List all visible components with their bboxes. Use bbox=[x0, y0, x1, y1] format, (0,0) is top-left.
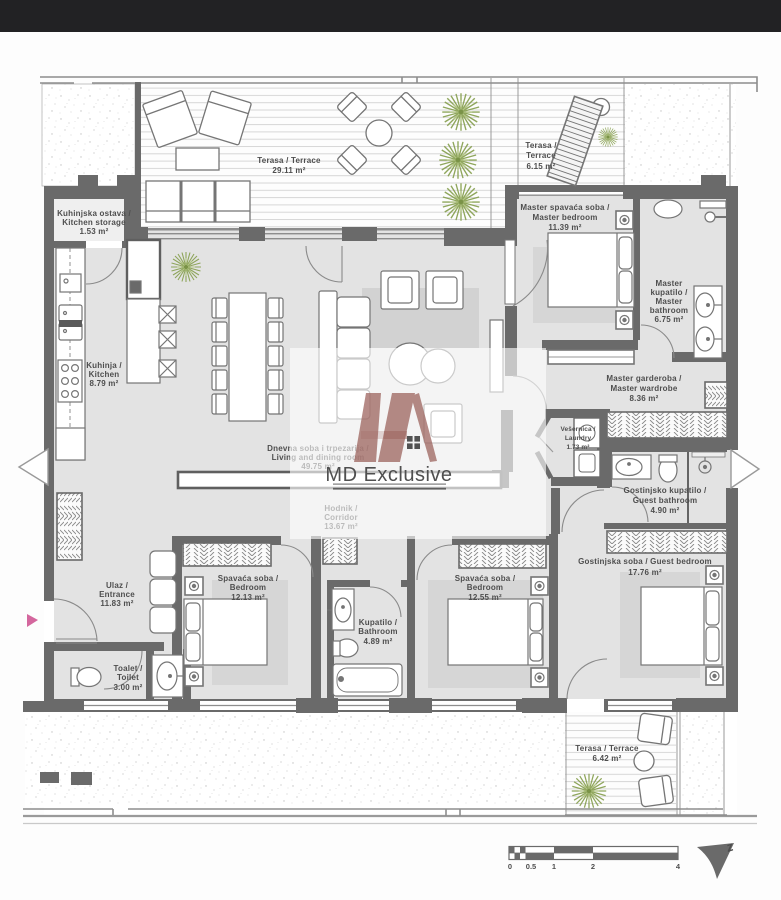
svg-text:Bedroom: Bedroom bbox=[230, 583, 267, 592]
svg-text:6.15 m²: 6.15 m² bbox=[527, 162, 556, 171]
svg-text:Master bedroom: Master bedroom bbox=[532, 213, 597, 222]
svg-text:MD Exclusive: MD Exclusive bbox=[325, 464, 452, 486]
svg-text:Terasa /: Terasa / bbox=[525, 141, 557, 150]
svg-text:29.11 m²: 29.11 m² bbox=[272, 166, 305, 175]
svg-text:6.75 m²: 6.75 m² bbox=[655, 315, 684, 324]
svg-text:Kitchen storage: Kitchen storage bbox=[62, 218, 126, 227]
svg-text:12.55 m²: 12.55 m² bbox=[468, 593, 502, 602]
svg-text:3.00 m²: 3.00 m² bbox=[114, 683, 143, 692]
svg-text:0: 0 bbox=[508, 862, 512, 871]
svg-text:Spavaća soba /: Spavaća soba / bbox=[455, 574, 516, 583]
svg-text:Guest bathroom: Guest bathroom bbox=[633, 496, 698, 505]
svg-text:4.89 m²: 4.89 m² bbox=[364, 637, 393, 646]
svg-text:Master spavaća soba /: Master spavaća soba / bbox=[520, 203, 610, 212]
svg-text:Ulaz /: Ulaz / bbox=[106, 581, 129, 590]
svg-text:8.36 m²: 8.36 m² bbox=[630, 394, 659, 403]
svg-text:1.53 m²: 1.53 m² bbox=[80, 227, 109, 236]
svg-text:kupatilo /: kupatilo / bbox=[650, 288, 688, 297]
svg-text:12.13 m²: 12.13 m² bbox=[231, 593, 265, 602]
svg-text:17.76 m²: 17.76 m² bbox=[628, 568, 662, 577]
svg-text:Terasa / Terrace: Terasa / Terrace bbox=[575, 744, 639, 753]
svg-text:6.42 m²: 6.42 m² bbox=[593, 754, 622, 763]
svg-text:Entrance: Entrance bbox=[99, 590, 135, 599]
svg-text:Toilet: Toilet bbox=[117, 673, 139, 682]
svg-text:bathroom: bathroom bbox=[650, 306, 689, 315]
svg-text:Gostinjska soba / Guest bedroo: Gostinjska soba / Guest bedroom bbox=[578, 557, 712, 566]
svg-text:Kitchen: Kitchen bbox=[89, 370, 120, 379]
svg-text:2: 2 bbox=[591, 862, 595, 871]
svg-text:Gostinjsko kupatilo /: Gostinjsko kupatilo / bbox=[624, 486, 707, 495]
svg-text:Laundry: Laundry bbox=[565, 435, 592, 442]
svg-text:Master: Master bbox=[656, 297, 683, 306]
svg-text:8.79 m²: 8.79 m² bbox=[90, 379, 119, 388]
svg-text:Kuhinja /: Kuhinja / bbox=[86, 361, 122, 370]
svg-text:1: 1 bbox=[552, 862, 556, 871]
svg-text:Master garderoba /: Master garderoba / bbox=[606, 374, 682, 383]
svg-text:Master: Master bbox=[656, 279, 683, 288]
svg-text:Vešernica /: Vešernica / bbox=[560, 426, 595, 433]
svg-text:Master wardrobe: Master wardrobe bbox=[610, 384, 677, 393]
svg-text:0.5: 0.5 bbox=[526, 862, 536, 871]
svg-text:4.90 m²: 4.90 m² bbox=[651, 506, 680, 515]
svg-text:11.39 m²: 11.39 m² bbox=[548, 223, 581, 232]
svg-text:Bedroom: Bedroom bbox=[467, 583, 504, 592]
svg-text:Terasa / Terrace: Terasa / Terrace bbox=[257, 156, 321, 165]
svg-text:Bathroom: Bathroom bbox=[358, 627, 397, 636]
svg-text:Terrace: Terrace bbox=[526, 151, 556, 160]
svg-text:11.83 m²: 11.83 m² bbox=[100, 599, 133, 608]
svg-text:Toalet /: Toalet / bbox=[113, 664, 143, 673]
svg-text:Spavaća soba /: Spavaća soba / bbox=[218, 574, 279, 583]
svg-text:1.73 m²: 1.73 m² bbox=[566, 444, 590, 451]
svg-text:Kupatilo /: Kupatilo / bbox=[359, 618, 398, 627]
svg-text:Kuhinjska ostava /: Kuhinjska ostava / bbox=[57, 209, 131, 218]
